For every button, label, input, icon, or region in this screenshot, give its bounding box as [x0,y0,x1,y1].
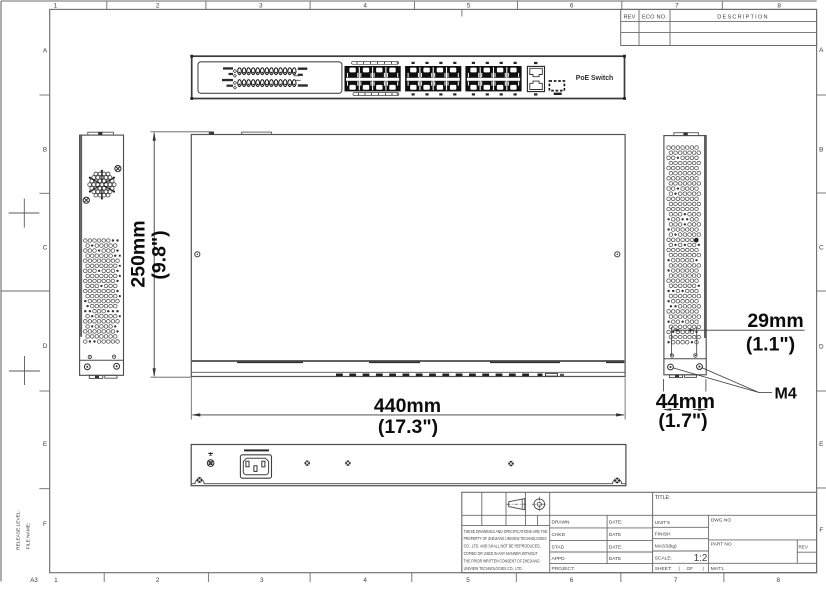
svg-text:5: 5 [467,3,471,10]
svg-text:1: 1 [54,3,58,10]
svg-text:250mm: 250mm [128,220,150,287]
svg-text:B: B [819,146,823,153]
svg-text:FINISH: FINISH [655,531,671,537]
svg-text:(1.1"): (1.1") [746,333,795,355]
svg-text:UNIT'S: UNIT'S [655,520,670,526]
svg-text:2: 2 [156,577,160,584]
svg-text:8: 8 [777,3,781,10]
svg-text:C: C [819,244,824,251]
svg-text:PROJECT:: PROJECT: [552,566,575,572]
svg-text:ECO NO.: ECO NO. [642,14,667,20]
svg-text:MASS(kg): MASS(kg) [655,543,677,549]
svg-text:OF: OF [687,566,694,572]
svg-text:6: 6 [570,577,574,584]
svg-text:CHKD: CHKD [552,532,566,538]
svg-text:E: E [819,441,823,448]
svg-text:4: 4 [363,577,367,584]
svg-text:A: A [819,47,824,54]
svg-text:8: 8 [777,577,781,584]
svg-text:MAT'L: MAT'L [711,566,725,572]
svg-text:REV: REV [798,544,808,549]
svg-text:DATE:: DATE: [609,544,623,550]
svg-text:3: 3 [260,577,264,584]
svg-text:UNIVIEW TECHNOLOGIES CO., LTD: UNIVIEW TECHNOLOGIES CO., LTD [464,566,522,571]
svg-text:THESE DRAWINGS AND SPECIFICATI: THESE DRAWINGS AND SPECIFICATIONS ARE TH… [464,529,548,534]
svg-text:B: B [43,146,47,153]
svg-text:DESCRIPTION: DESCRIPTION [717,14,768,20]
svg-text:DATE: DATE [609,556,621,562]
svg-text:DATE:: DATE: [609,520,623,526]
svg-text:440mm: 440mm [374,395,441,417]
svg-text:D: D [819,344,824,351]
svg-text:DATE: DATE [609,532,621,538]
svg-text:DRAWN: DRAWN [552,520,570,526]
svg-text:TITLE:: TITLE: [655,495,671,501]
svg-text:RELEASE LEVEL:: RELEASE LEVEL: [16,510,22,550]
svg-text:COPIED OR USED IN ANY MANNER W: COPIED OR USED IN ANY MANNER WITHOUT [464,551,538,556]
svg-text:A3: A3 [30,577,38,584]
svg-text:4: 4 [363,3,367,10]
svg-text:|: | [679,566,680,572]
svg-text:3: 3 [259,3,263,10]
svg-text:1: 1 [54,577,58,584]
svg-text:7: 7 [674,577,678,584]
svg-text:D: D [43,343,48,350]
svg-text:7: 7 [675,3,679,10]
svg-text:A: A [43,47,48,54]
svg-text:PoE Switch: PoE Switch [576,75,614,82]
svg-text:(9.8"): (9.8") [149,230,171,279]
svg-text:CO., LTD. AND SHALL NOT BE REP: CO., LTD. AND SHALL NOT BE REPRODUCED, [464,544,541,549]
svg-text:THE PRIOR WRITTEN CONSENT OF Z: THE PRIOR WRITTEN CONSENT OF ZHEJIANG [464,559,540,564]
svg-text:M4: M4 [775,386,797,403]
svg-text:PART NO: PART NO [711,542,732,548]
svg-text:29mm: 29mm [747,310,803,332]
svg-text:SCALE:: SCALE: [655,556,672,562]
svg-text:E: E [43,441,47,448]
svg-text:SHEET:: SHEET: [655,566,672,572]
svg-text:DWG NO: DWG NO [711,517,732,523]
svg-text:(1.7"): (1.7") [658,410,707,432]
svg-text:F: F [819,527,823,534]
svg-text:FILE NAME:: FILE NAME: [26,523,32,550]
svg-text:C: C [43,244,48,251]
svg-text:F: F [43,521,47,528]
svg-text:STAD: STAD [552,544,565,550]
svg-text:(17.3"): (17.3") [378,416,438,438]
svg-text:6: 6 [570,3,574,10]
svg-text:APPD: APPD [552,556,566,562]
svg-text:1:2: 1:2 [694,553,708,564]
svg-text:|: | [703,566,704,572]
svg-text:REV: REV [623,14,635,20]
svg-text:5: 5 [466,577,470,584]
svg-text:PROPERTY OF ZHEJIANG UNIVIEW T: PROPERTY OF ZHEJIANG UNIVIEW TECHNOLOGIE… [464,536,547,541]
svg-text:2: 2 [156,3,160,10]
